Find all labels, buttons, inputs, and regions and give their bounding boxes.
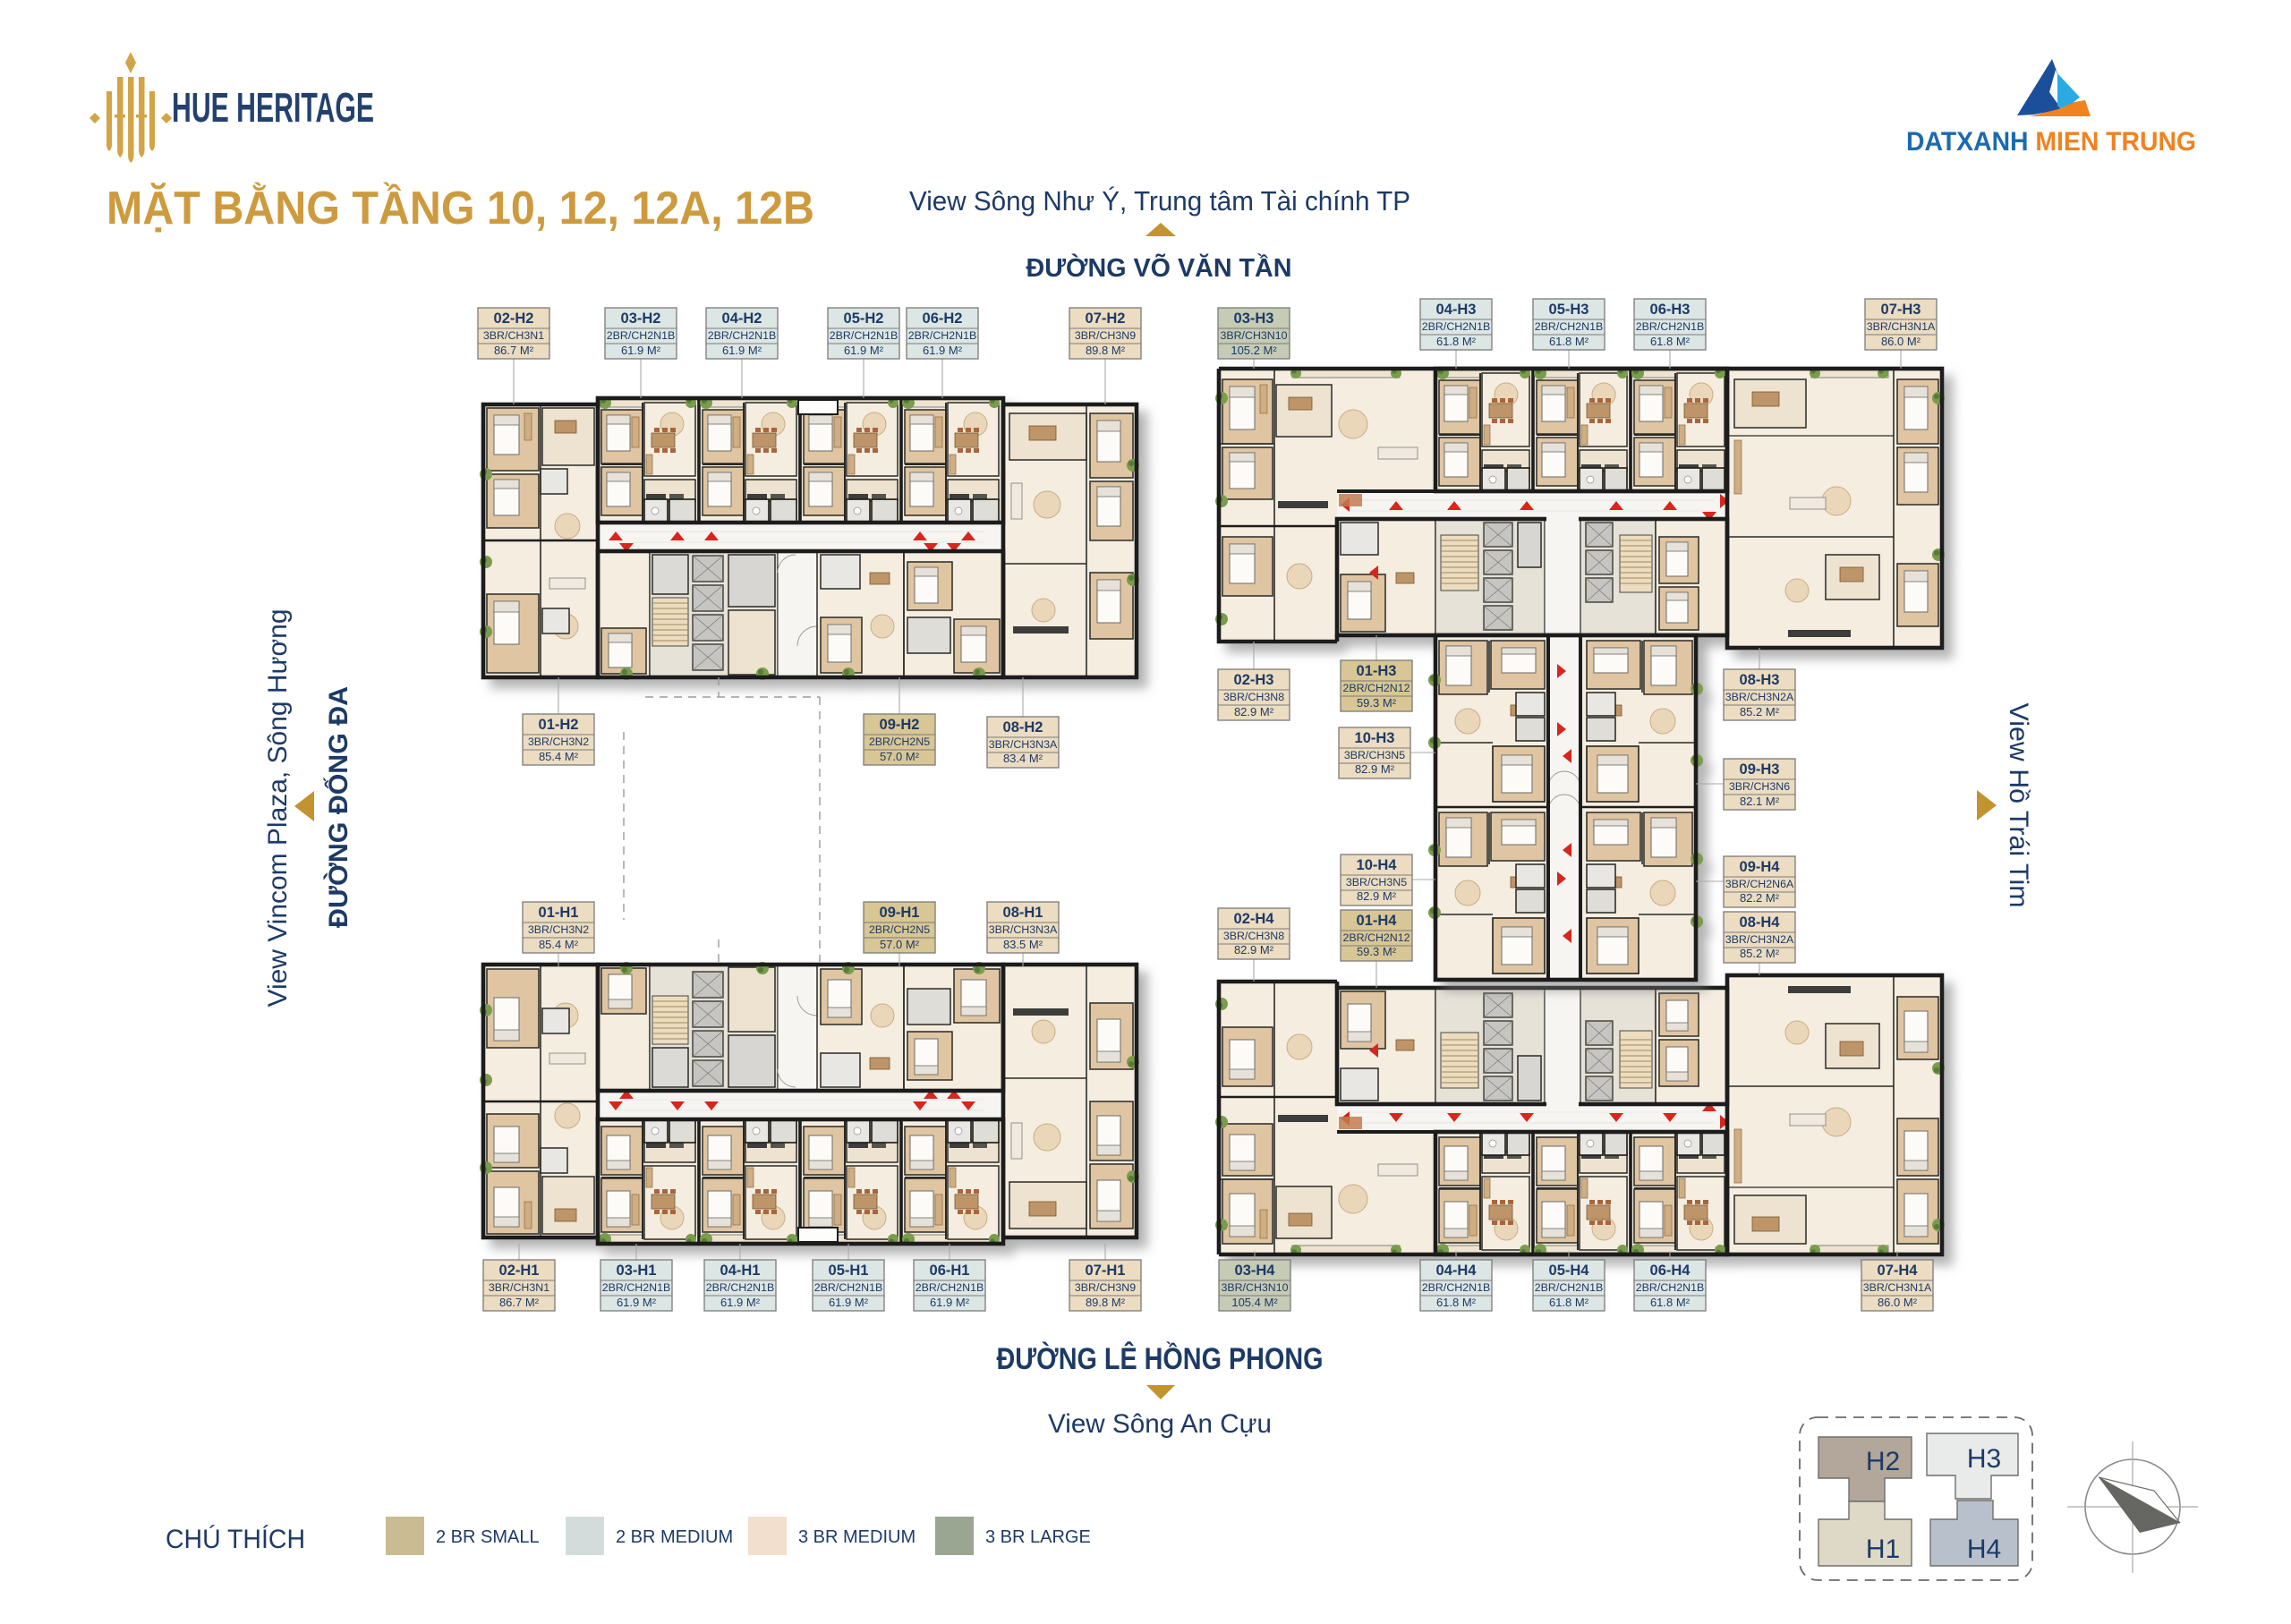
- svg-text:3BR/CH3N8: 3BR/CH3N8: [1223, 930, 1284, 942]
- svg-text:H4: H4: [1967, 1535, 2001, 1564]
- svg-text:2 BR MEDIUM: 2 BR MEDIUM: [616, 1527, 733, 1547]
- svg-text:85.4 M²: 85.4 M²: [539, 938, 579, 951]
- svg-text:2 BR SMALL: 2 BR SMALL: [436, 1527, 540, 1547]
- svg-text:07-H3: 07-H3: [1881, 302, 1921, 318]
- svg-text:3BR/CH3N1: 3BR/CH3N1: [483, 329, 544, 342]
- svg-text:86.7 M²: 86.7 M²: [499, 1296, 540, 1309]
- svg-text:View Vincom Plaza, Sông Hương: View Vincom Plaza, Sông Hương: [263, 609, 293, 1008]
- svg-text:2BR/CH2N12: 2BR/CH2N12: [1342, 931, 1410, 944]
- svg-text:ĐƯỜNG LÊ HỒNG PHONG: ĐƯỜNG LÊ HỒNG PHONG: [997, 1342, 1324, 1376]
- svg-text:2BR/CH2N1B: 2BR/CH2N1B: [830, 329, 898, 342]
- svg-text:03-H2: 03-H2: [621, 310, 661, 327]
- svg-text:2BR/CH2N1B: 2BR/CH2N1B: [602, 1281, 670, 1294]
- svg-text:61.9 M²: 61.9 M²: [923, 344, 963, 357]
- svg-text:3BR/CH3N2A: 3BR/CH3N2A: [1725, 691, 1794, 703]
- svg-text:3 BR LARGE: 3 BR LARGE: [985, 1527, 1091, 1547]
- svg-text:01-H3: 01-H3: [1357, 663, 1397, 679]
- svg-text:DATXANH MIEN TRUNG: DATXANH MIEN TRUNG: [1906, 127, 2196, 157]
- svg-text:3BR/CH3N2A: 3BR/CH3N2A: [1725, 933, 1794, 946]
- svg-text:2BR/CH2N12: 2BR/CH2N12: [1342, 682, 1410, 694]
- svg-text:105.4 M²: 105.4 M²: [1231, 1296, 1278, 1309]
- svg-text:2BR/CH2N1B: 2BR/CH2N1B: [1422, 320, 1490, 333]
- svg-text:08-H3: 08-H3: [1740, 672, 1780, 688]
- svg-text:3BR/CH3N2: 3BR/CH3N2: [528, 735, 589, 748]
- svg-text:57.0 M²: 57.0 M²: [880, 750, 920, 763]
- svg-text:82.1 M²: 82.1 M²: [1740, 795, 1780, 808]
- svg-text:2BR/CH2N1B: 2BR/CH2N1B: [706, 1281, 774, 1294]
- svg-text:View Hồ Trái Tim: View Hồ Trái Tim: [2004, 703, 2033, 908]
- svg-text:View Sông Như Ý, Trung tâm Tài: View Sông Như Ý, Trung tâm Tài chính TP: [909, 185, 1410, 217]
- svg-text:82.9 M²: 82.9 M²: [1357, 889, 1397, 903]
- svg-text:85.2 M²: 85.2 M²: [1740, 947, 1780, 960]
- svg-text:3 BR MEDIUM: 3 BR MEDIUM: [798, 1527, 916, 1547]
- svg-text:61.9 M²: 61.9 M²: [720, 1296, 761, 1309]
- svg-text:H1: H1: [1866, 1535, 1900, 1564]
- svg-text:3BR/CH3N10: 3BR/CH3N10: [1220, 329, 1287, 342]
- svg-text:61.9 M²: 61.9 M²: [617, 1296, 657, 1309]
- svg-text:59.3 M²: 59.3 M²: [1357, 945, 1397, 958]
- svg-text:CHÚ THÍCH: CHÚ THÍCH: [166, 1525, 305, 1554]
- svg-text:61.9 M²: 61.9 M²: [722, 344, 762, 357]
- svg-text:01-H2: 01-H2: [539, 717, 579, 733]
- svg-text:82.9 M²: 82.9 M²: [1234, 705, 1274, 718]
- svg-text:82.2 M²: 82.2 M²: [1740, 891, 1780, 905]
- svg-text:3BR/CH3N9: 3BR/CH3N9: [1075, 329, 1136, 342]
- svg-text:2BR/CH2N1B: 2BR/CH2N1B: [1636, 320, 1704, 333]
- svg-text:86.0 M²: 86.0 M²: [1881, 335, 1921, 348]
- svg-text:105.2 M²: 105.2 M²: [1231, 344, 1277, 357]
- svg-text:07-H4: 07-H4: [1878, 1263, 1919, 1279]
- svg-text:3BR/CH3N3A: 3BR/CH3N3A: [989, 738, 1058, 751]
- svg-text:61.9 M²: 61.9 M²: [829, 1296, 869, 1309]
- svg-text:02-H3: 02-H3: [1234, 672, 1274, 688]
- svg-text:2BR/CH2N1B: 2BR/CH2N1B: [1636, 1281, 1704, 1294]
- svg-text:3BR/CH3N1: 3BR/CH3N1: [489, 1281, 549, 1294]
- svg-text:3BR/CH3N1A: 3BR/CH3N1A: [1867, 320, 1936, 333]
- svg-text:09-H2: 09-H2: [880, 717, 920, 733]
- svg-text:09-H4: 09-H4: [1740, 859, 1781, 875]
- svg-text:H3: H3: [1967, 1444, 2001, 1474]
- svg-text:09-H1: 09-H1: [880, 905, 920, 921]
- svg-text:83.5 M²: 83.5 M²: [1003, 938, 1043, 951]
- svg-text:03-H4: 03-H4: [1235, 1263, 1276, 1279]
- svg-text:02-H1: 02-H1: [499, 1263, 540, 1279]
- svg-text:08-H1: 08-H1: [1003, 905, 1043, 921]
- svg-text:85.2 M²: 85.2 M²: [1740, 705, 1780, 718]
- svg-text:3BR/CH3N5: 3BR/CH3N5: [1346, 876, 1407, 889]
- svg-text:2BR/CH2N1B: 2BR/CH2N1B: [908, 329, 976, 342]
- svg-text:01-H4: 01-H4: [1357, 913, 1398, 929]
- svg-text:2BR/CH2N1B: 2BR/CH2N1B: [607, 329, 675, 342]
- svg-text:3BR/CH3N10: 3BR/CH3N10: [1221, 1281, 1288, 1294]
- svg-text:3BR/CH3N2: 3BR/CH3N2: [528, 923, 589, 936]
- svg-text:3BR/CH2N6A: 3BR/CH2N6A: [1725, 878, 1794, 890]
- svg-text:3BR/CH3N1A: 3BR/CH3N1A: [1863, 1281, 1932, 1294]
- svg-text:82.9 M²: 82.9 M²: [1355, 762, 1395, 776]
- svg-text:03-H3: 03-H3: [1234, 310, 1274, 327]
- svg-text:85.4 M²: 85.4 M²: [539, 750, 579, 763]
- svg-text:02-H4: 02-H4: [1234, 911, 1275, 927]
- svg-text:61.8 M²: 61.8 M²: [1549, 1296, 1589, 1309]
- svg-text:3BR/CH3N9: 3BR/CH3N9: [1075, 1281, 1136, 1294]
- svg-text:61.9 M²: 61.9 M²: [930, 1296, 970, 1309]
- svg-text:3BR/CH3N3A: 3BR/CH3N3A: [989, 923, 1058, 936]
- svg-text:04-H4: 04-H4: [1436, 1263, 1478, 1279]
- svg-text:2BR/CH2N5: 2BR/CH2N5: [869, 735, 930, 748]
- svg-text:MẶT BẰNG TẦNG 10, 12, 12A, 12B: MẶT BẰNG TẦNG 10, 12, 12A, 12B: [106, 182, 814, 234]
- svg-text:61.8 M²: 61.8 M²: [1650, 1296, 1691, 1309]
- svg-text:04-H2: 04-H2: [722, 310, 762, 327]
- svg-text:57.0 M²: 57.0 M²: [880, 938, 920, 951]
- svg-text:05-H2: 05-H2: [844, 310, 884, 327]
- svg-text:61.8 M²: 61.8 M²: [1436, 1296, 1477, 1309]
- svg-text:2BR/CH2N1B: 2BR/CH2N1B: [1535, 1281, 1603, 1294]
- svg-text:04-H3: 04-H3: [1436, 302, 1477, 318]
- svg-text:02-H2: 02-H2: [494, 310, 534, 327]
- svg-text:10-H3: 10-H3: [1355, 730, 1395, 746]
- svg-text:ĐƯỜNG VÕ VĂN TẦN: ĐƯỜNG VÕ VĂN TẦN: [1026, 252, 1292, 283]
- svg-text:05-H4: 05-H4: [1549, 1263, 1590, 1279]
- svg-text:61.8 M²: 61.8 M²: [1549, 335, 1589, 348]
- svg-text:05-H3: 05-H3: [1549, 302, 1589, 318]
- svg-text:08-H2: 08-H2: [1003, 719, 1043, 735]
- svg-text:06-H3: 06-H3: [1650, 302, 1691, 318]
- svg-text:2BR/CH2N1B: 2BR/CH2N1B: [916, 1281, 984, 1294]
- svg-text:2BR/CH2N1B: 2BR/CH2N1B: [708, 329, 776, 342]
- svg-text:HUE HERITAGE: HUE HERITAGE: [172, 84, 374, 131]
- svg-text:83.4 M²: 83.4 M²: [1003, 752, 1043, 765]
- svg-text:05-H1: 05-H1: [829, 1263, 869, 1279]
- svg-text:07-H1: 07-H1: [1086, 1263, 1126, 1279]
- svg-text:03-H1: 03-H1: [617, 1263, 657, 1279]
- svg-text:61.8 M²: 61.8 M²: [1436, 335, 1477, 348]
- svg-text:09-H3: 09-H3: [1740, 761, 1780, 778]
- svg-text:2BR/CH2N1B: 2BR/CH2N1B: [814, 1281, 882, 1294]
- svg-text:2BR/CH2N1B: 2BR/CH2N1B: [1535, 320, 1603, 333]
- svg-text:86.0 M²: 86.0 M²: [1878, 1296, 1918, 1309]
- svg-text:2BR/CH2N5: 2BR/CH2N5: [869, 923, 930, 936]
- svg-text:3BR/CH3N5: 3BR/CH3N5: [1344, 749, 1405, 761]
- svg-text:ĐƯỜNG ĐỐNG ĐA: ĐƯỜNG ĐỐNG ĐA: [323, 686, 353, 928]
- svg-text:86.7 M²: 86.7 M²: [494, 344, 534, 357]
- svg-text:89.8 M²: 89.8 M²: [1086, 344, 1126, 357]
- svg-text:82.9 M²: 82.9 M²: [1234, 943, 1274, 957]
- svg-text:06-H4: 06-H4: [1650, 1263, 1691, 1279]
- svg-text:61.9 M²: 61.9 M²: [621, 344, 661, 357]
- svg-text:04-H1: 04-H1: [720, 1263, 761, 1279]
- svg-text:08-H4: 08-H4: [1740, 914, 1781, 931]
- svg-text:10-H4: 10-H4: [1357, 857, 1398, 873]
- svg-text:2BR/CH2N1B: 2BR/CH2N1B: [1422, 1281, 1490, 1294]
- svg-text:61.8 M²: 61.8 M²: [1650, 335, 1691, 348]
- svg-text:H2: H2: [1866, 1447, 1900, 1476]
- svg-text:3BR/CH3N8: 3BR/CH3N8: [1223, 691, 1284, 703]
- svg-text:89.8 M²: 89.8 M²: [1086, 1296, 1126, 1309]
- svg-text:06-H1: 06-H1: [930, 1263, 970, 1279]
- svg-text:07-H2: 07-H2: [1086, 310, 1126, 327]
- svg-text:59.3 M²: 59.3 M²: [1357, 696, 1397, 710]
- svg-text:01-H1: 01-H1: [539, 905, 579, 921]
- svg-text:3BR/CH3N6: 3BR/CH3N6: [1729, 780, 1790, 793]
- svg-text:06-H2: 06-H2: [923, 310, 963, 327]
- svg-text:61.9 M²: 61.9 M²: [844, 344, 884, 357]
- svg-text:View Sông An Cựu: View Sông An Cựu: [1048, 1409, 1272, 1439]
